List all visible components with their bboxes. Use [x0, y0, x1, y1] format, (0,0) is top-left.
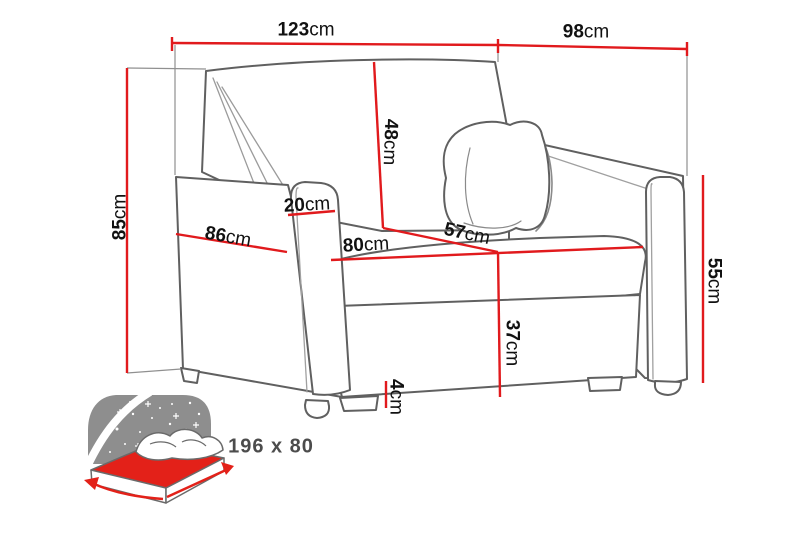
sleeping-area-size-label: 196 x 80 [228, 436, 314, 459]
dim-line-123 [172, 43, 498, 45]
dim-label-arm-height-55: 55cm [705, 258, 724, 304]
width-arrow-head [84, 477, 99, 490]
sofa-dimension-diagram: 123cm 98cm 85cm 48cm 20cm 86cm 80cm 57cm… [0, 0, 800, 533]
dim-label-leg-height-4: 4cm [387, 379, 406, 415]
dim-value: 48 [380, 118, 402, 140]
dim-unit: cm [379, 140, 401, 166]
dim-unit: cm [386, 390, 407, 415]
dim-unit: cm [584, 22, 609, 43]
dim-label-seat-height-37: 37cm [503, 320, 522, 366]
dim-value: 98 [563, 22, 584, 43]
dim-label-armrest-20: 20cm [283, 194, 330, 215]
dim-unit: cm [363, 233, 389, 255]
dim-label-backrest-48: 48cm [380, 118, 401, 165]
dim-unit: cm [110, 194, 131, 219]
dim-value: 4 [386, 379, 407, 390]
dim-line-98 [498, 45, 687, 49]
dim-label-depth-98: 98cm [563, 23, 609, 42]
dim-label-height-85: 85cm [111, 194, 130, 240]
dim-unit: cm [224, 226, 253, 251]
dim-value: 37 [502, 320, 523, 341]
dim-value: 123 [277, 20, 309, 41]
dim-label-seat-width-80: 80cm [342, 234, 389, 255]
dim-value: 55 [704, 258, 725, 279]
diagram-canvas [0, 0, 800, 533]
dim-value: 80 [342, 235, 364, 257]
dim-unit: cm [304, 193, 330, 215]
sleep-function-icon [84, 392, 234, 503]
dim-unit: cm [704, 279, 725, 304]
dim-unit: cm [502, 341, 523, 366]
right-armrest [646, 177, 687, 383]
dim-unit: cm [309, 20, 334, 41]
pillow [444, 122, 550, 235]
dim-value: 20 [283, 195, 305, 217]
dim-value: 85 [110, 219, 131, 240]
dim-label-width-123: 123cm [277, 21, 334, 40]
